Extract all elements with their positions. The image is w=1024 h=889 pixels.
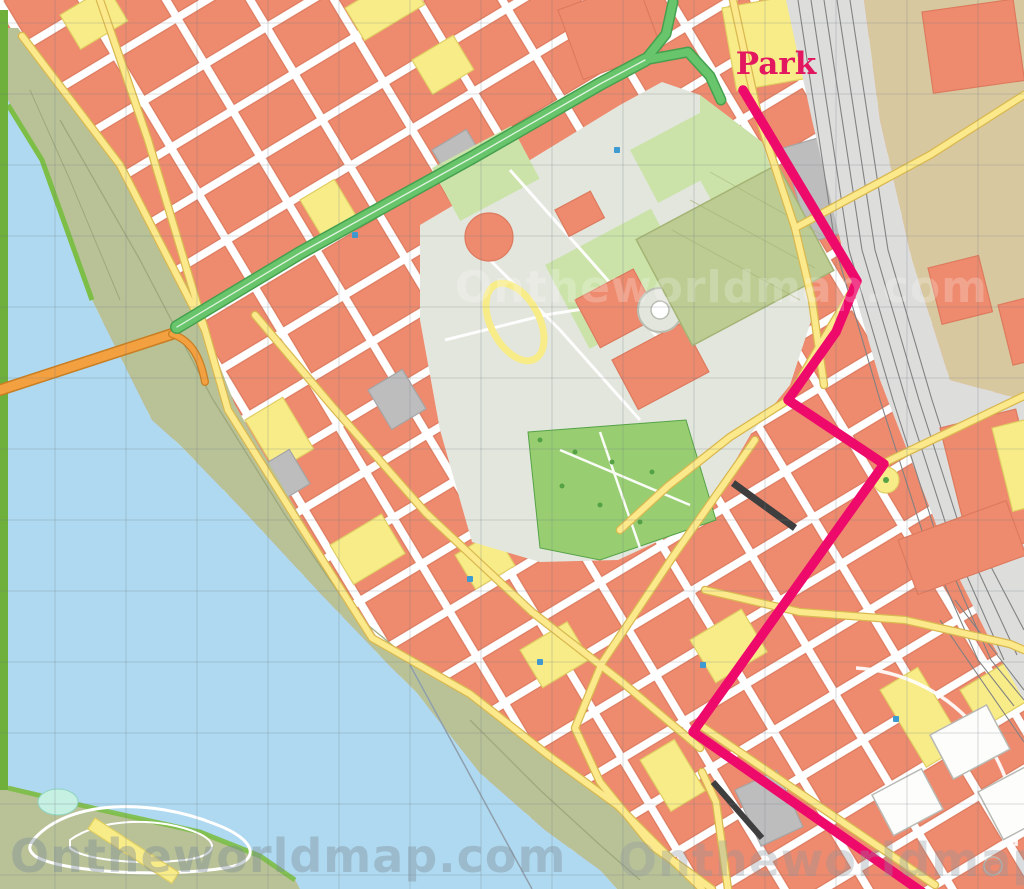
watermark-text: Ontheworldmap.com bbox=[455, 262, 988, 313]
pond bbox=[38, 789, 78, 815]
watermark-text: Ontheworldmap.com bbox=[10, 829, 566, 883]
city-map-screenshot: Park Ontheworldmap.com Ontheworldmap.com… bbox=[0, 0, 1024, 889]
watermark-text: Ontheworldmap.com bbox=[618, 833, 1024, 887]
round-building bbox=[465, 213, 513, 261]
map-canvas: Park Ontheworldmap.com Ontheworldmap.com… bbox=[0, 0, 1024, 889]
map-edge-green-strip bbox=[0, 10, 8, 790]
park-label: Park bbox=[736, 46, 818, 82]
